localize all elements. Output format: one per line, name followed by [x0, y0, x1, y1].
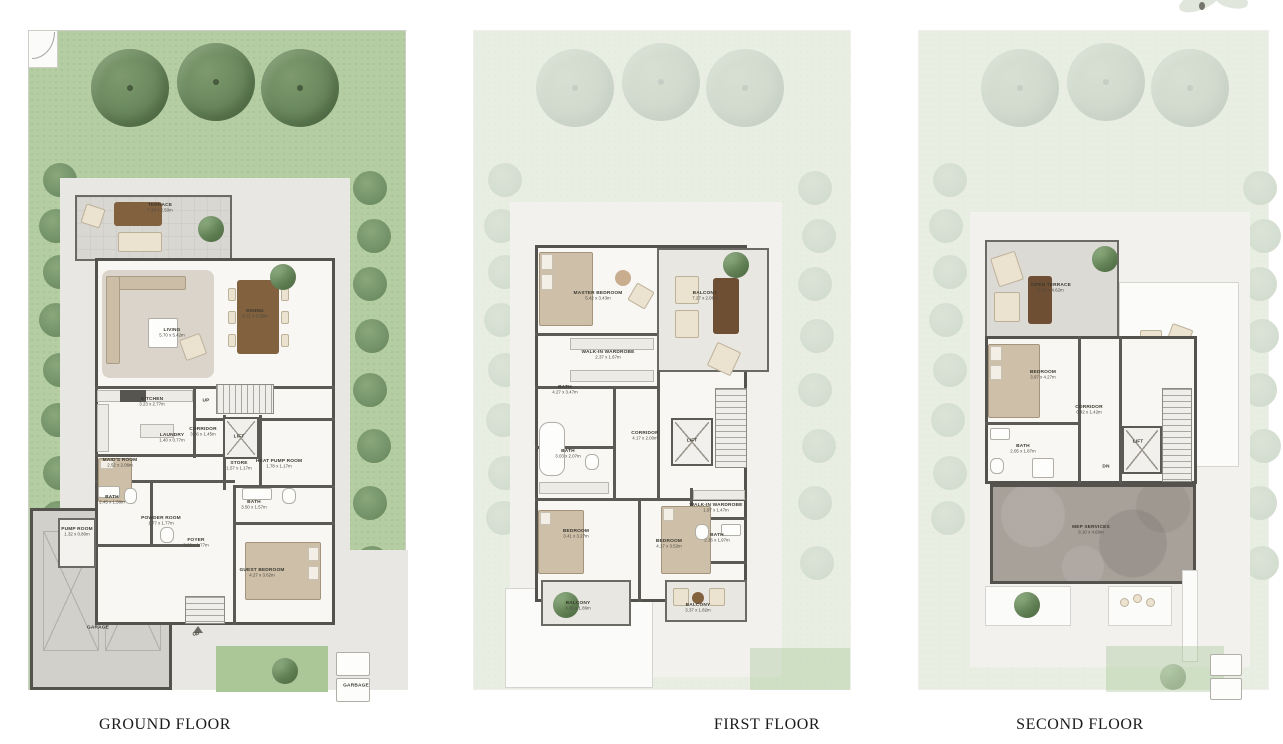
room-label: GUEST BEDROOM4.27 x 3.62m — [239, 568, 284, 579]
room-label: KITCHEN3.23 x 2.77m — [139, 397, 164, 408]
room-label: BEDROOM3.97 x 4.27m — [1030, 370, 1056, 381]
room-label: BEDROOM4.17 x 3.52m — [656, 539, 682, 550]
room-label: LAUNDRY1.40 x 0.77m — [159, 433, 184, 444]
room-label: BATH2.45 x 1.58m — [99, 495, 124, 506]
room-label: BATH3.50 x 1.57m — [241, 500, 266, 511]
room-label: BATH3.03 x 2.07m — [555, 449, 580, 460]
room-label: CORRIDOR3.86 x 1.45m — [189, 427, 216, 438]
room-label: PUMP ROOM1.32 x 0.80m — [61, 527, 92, 538]
room-label: BATH4.27 x 3.47m — [552, 385, 577, 396]
room-label: POWDER ROOM1.77 x 1.77m — [141, 516, 181, 527]
caption-ground-floor: GROUND FLOOR — [99, 716, 231, 734]
room-label: LIVING5.70 x 5.42m — [159, 328, 184, 339]
room-label: LIFT — [687, 438, 698, 444]
room-label: DN — [1102, 464, 1109, 470]
room-label: DINING5.72 x 3.35m — [242, 309, 267, 320]
room-label: WALK-IN WARDROBE1.97 x 1.47m — [690, 503, 743, 514]
room-label: CORRIDOR6.42 x 1.42m — [1075, 405, 1102, 416]
room-label: BATH2.05 x 1.87m — [1010, 444, 1035, 455]
room-labels: TERRACE7.10 x 2.50mLIVING5.70 x 5.42mDIN… — [20, 30, 420, 690]
room-label: MASTER BEDROOM5.42 x 3.43m — [574, 291, 623, 302]
first-floor-plan: MASTER BEDROOM5.42 x 3.43mBALCONY7.27 x … — [465, 30, 865, 690]
room-label: BATH2.36 x 1.97m — [704, 533, 729, 544]
room-label: WALK-IN WARDROBE2.37 x 1.67m — [582, 350, 635, 361]
room-label: BALCONY3.65 x 1.86m — [565, 601, 590, 612]
room-label: FOYER3.66 x 1.77m — [183, 538, 208, 549]
room-label: BALCONY3.37 x 1.82m — [685, 603, 710, 614]
caption-first-floor: FIRST FLOOR — [714, 716, 820, 734]
room-label: HEAT PUMP ROOM1.78 x 1.17m — [256, 459, 302, 470]
room-label: GARAGE — [87, 625, 109, 631]
room-label: MEP SERVICES9.10 x 4.60m — [1072, 525, 1110, 536]
room-label: CORRIDOR4.17 x 2.00m — [631, 431, 658, 442]
room-label: BEDROOM3.41 x 3.27m — [563, 529, 589, 540]
room-label: OPEN TERRACE5.82 x 4.62m — [1031, 283, 1071, 294]
room-label: GARBAGE — [343, 683, 369, 689]
second-floor-plan: OPEN TERRACE5.82 x 4.62mBEDROOM3.97 x 4.… — [910, 30, 1283, 690]
room-label: UP — [193, 632, 200, 638]
room-label: LIFT — [1133, 439, 1144, 445]
room-labels: MASTER BEDROOM5.42 x 3.43mBALCONY7.27 x … — [465, 30, 865, 690]
room-label: BALCONY7.27 x 2.06m — [692, 291, 717, 302]
room-label: STORE1.57 x 1.17m — [226, 461, 251, 472]
room-labels: OPEN TERRACE5.82 x 4.62mBEDROOM3.97 x 4.… — [910, 30, 1283, 690]
caption-second-floor: SECOND FLOOR — [1016, 716, 1144, 734]
room-label: LIFT — [234, 434, 245, 440]
ground-floor-plan: TERRACE7.10 x 2.50mLIVING5.70 x 5.42mDIN… — [20, 30, 420, 690]
floor-plan-page: { "page": { "background": "#ffffff", "de… — [0, 0, 1283, 744]
room-label: TERRACE7.10 x 2.50m — [147, 203, 172, 214]
room-label: MAID'S ROOM2.52 x 2.06m — [103, 458, 138, 469]
room-label: UP — [203, 398, 210, 404]
